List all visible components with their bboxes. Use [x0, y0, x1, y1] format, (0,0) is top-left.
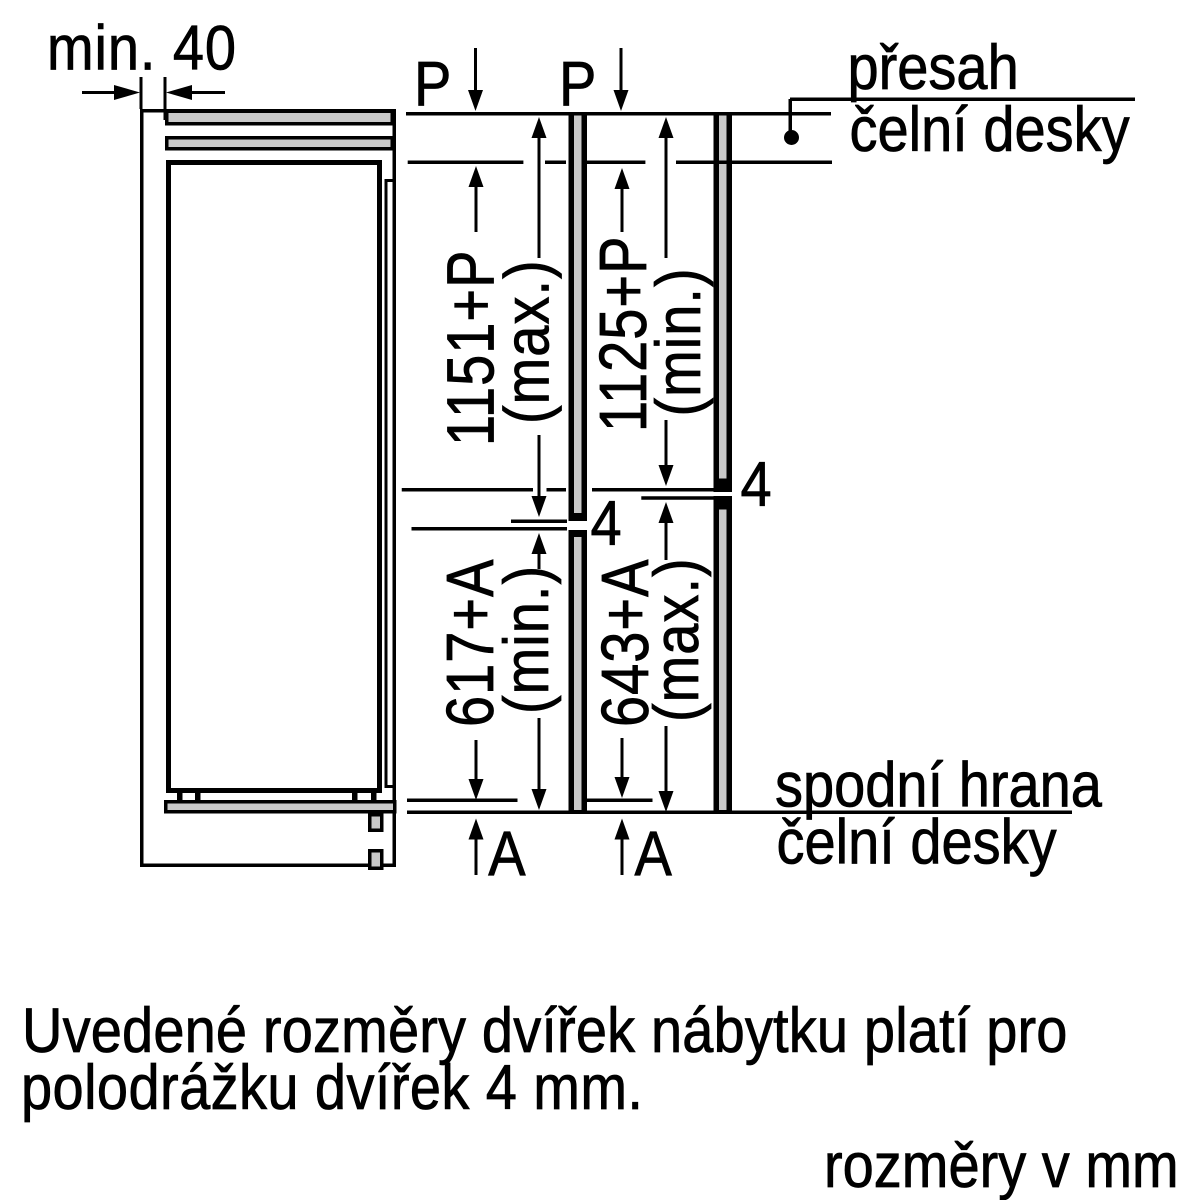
- svg-text:polodrážku dvířek 4 mm.: polodrážku dvířek 4 mm.: [21, 1052, 643, 1123]
- svg-text:(max.): (max.): [641, 557, 712, 722]
- svg-text:rozměry v mm: rozměry v mm: [824, 1130, 1179, 1200]
- svg-text:min. 40: min. 40: [47, 12, 237, 83]
- svg-text:P: P: [414, 48, 451, 119]
- svg-text:A: A: [635, 818, 672, 889]
- svg-text:P: P: [559, 48, 596, 119]
- svg-text:(min.): (min.): [491, 565, 562, 714]
- svg-text:čelní desky: čelní desky: [850, 94, 1130, 165]
- svg-text:(max.): (max.): [491, 259, 562, 424]
- svg-text:4: 4: [741, 449, 772, 520]
- svg-text:čelní desky: čelní desky: [777, 807, 1057, 878]
- svg-text:A: A: [488, 818, 525, 889]
- svg-text:(min.): (min.): [643, 267, 714, 416]
- svg-text:4: 4: [591, 488, 622, 559]
- svg-text:přesah: přesah: [848, 32, 1019, 103]
